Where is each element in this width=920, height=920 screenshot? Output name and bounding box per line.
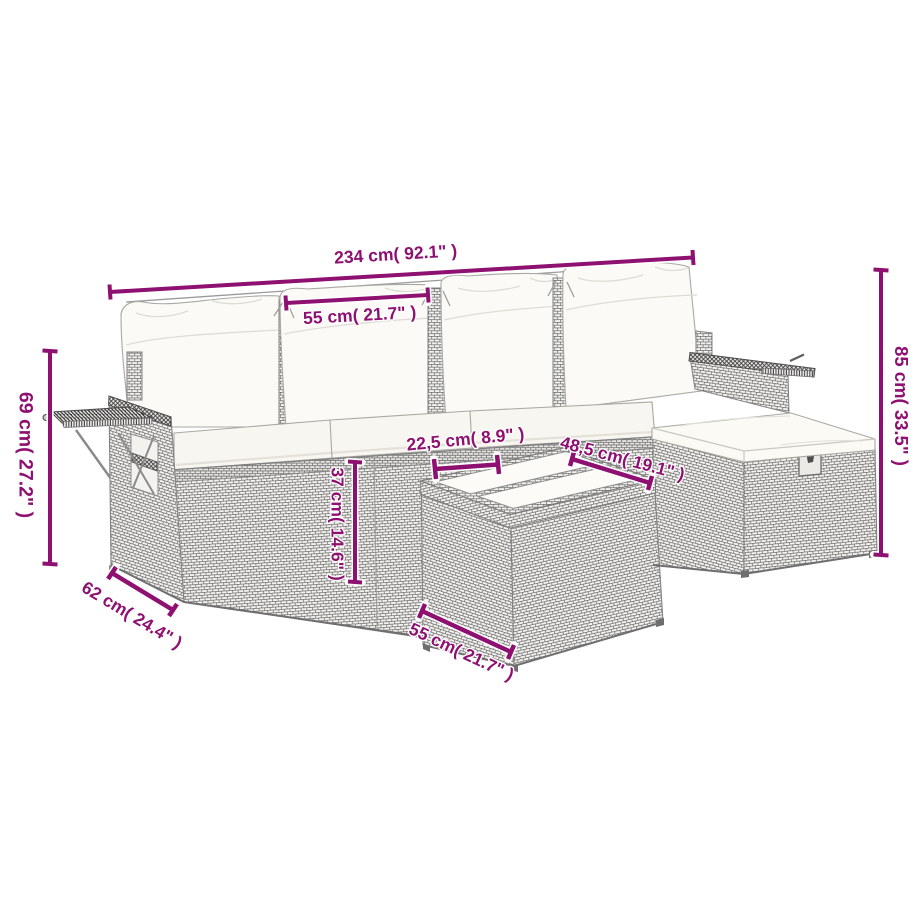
svg-text:85 cm( 33.5" ): 85 cm( 33.5" ) <box>891 346 912 466</box>
svg-text:37 cm( 14.6" ): 37 cm( 14.6" ) <box>328 467 348 580</box>
svg-text:69 cm( 27.2" ): 69 cm( 27.2" ) <box>15 392 37 518</box>
